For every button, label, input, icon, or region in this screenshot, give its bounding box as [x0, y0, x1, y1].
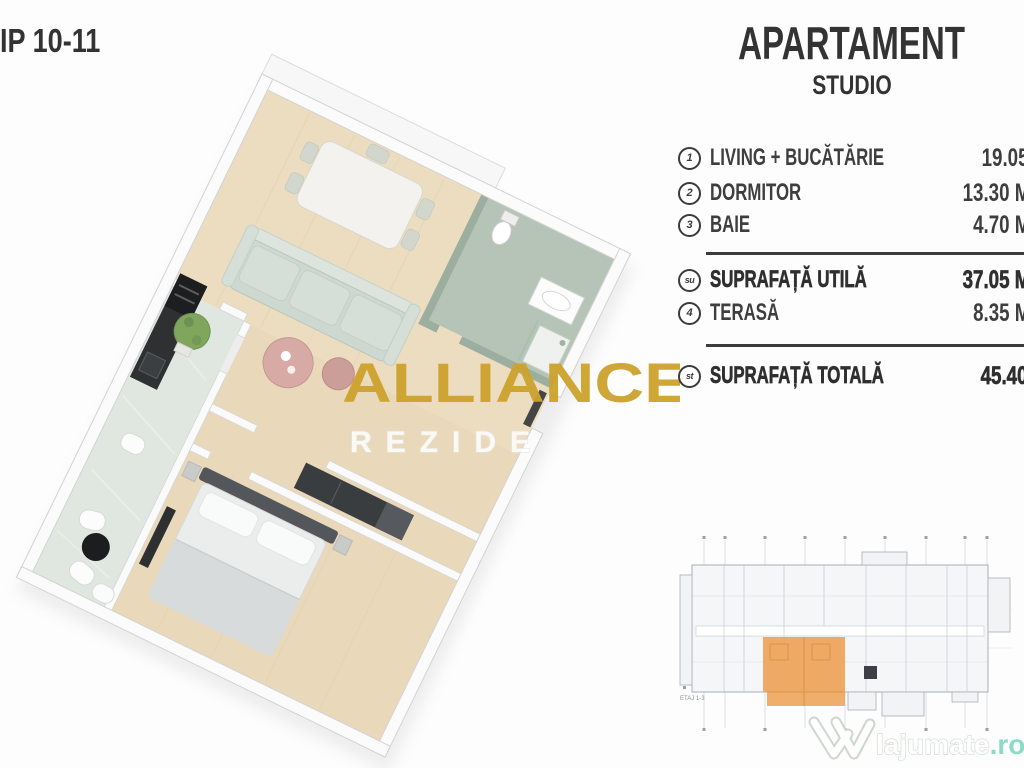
room-label: TERASĂ — [710, 299, 779, 327]
room-area: 4.70 M — [973, 211, 1024, 240]
su-badge: su — [678, 269, 701, 292]
summary-label: SUPRAFAȚĂ UTILĂ — [710, 266, 867, 294]
room-number-badge: 2 — [678, 182, 701, 205]
floor-label: ETAJ 1-3 — [680, 696, 705, 702]
floor-plan-3d-render: ALLIANCE REZIDE — [0, 40, 680, 768]
alliance-watermark-line1: ALLIANCE — [342, 351, 680, 414]
room-area: 13.30 M — [962, 179, 1024, 208]
room-number-badge: 3 — [678, 214, 701, 237]
room-area: 8.35 M — [973, 299, 1024, 328]
logo-text: lajumate.ro — [876, 729, 1024, 760]
panel-title: APARTAMENT STUDIO — [672, 20, 1024, 99]
total-row-suprafata-totala: st SUPRAFAȚĂ TOTALĂ 45.40 M — [678, 362, 1024, 390]
title-apartament: APARTAMENT — [739, 20, 966, 66]
room-row-living: 1 LIVING + BUCĂTĂRIE 19.05 M — [678, 144, 1024, 172]
alliance-watermark-line2: REZIDE — [350, 426, 544, 459]
alliance-watermark: ALLIANCE REZIDE — [342, 351, 680, 459]
heart-icon — [814, 722, 870, 754]
divider — [706, 344, 1024, 347]
room-number-badge: 1 — [678, 147, 701, 170]
total-label: SUPRAFAȚĂ TOTALĂ — [710, 362, 884, 390]
summary-area: 37.05 M — [962, 266, 1024, 295]
highlighted-units — [763, 637, 845, 706]
room-label: BAIE — [710, 211, 750, 239]
elevator-shaft — [864, 666, 877, 679]
room-number-badge: 4 — [678, 302, 701, 325]
room-area: 19.05 M — [981, 144, 1024, 173]
corridor — [696, 626, 984, 636]
divider — [706, 252, 1024, 255]
room-row-terasa: 4 TERASĂ 8.35 M — [678, 299, 1024, 327]
summary-row-suprafata-utila: su SUPRAFAȚĂ UTILĂ 37.05 M — [678, 266, 1024, 294]
room-row-baie: 3 BAIE 4.70 M — [678, 211, 1024, 239]
lajumate-logo: lajumate.ro — [800, 712, 1024, 768]
room-row-dormitor: 2 DORMITOR 13.30 M — [678, 179, 1024, 207]
st-badge: st — [678, 365, 701, 388]
room-label: DORMITOR — [710, 179, 801, 207]
title-studio: STUDIO — [812, 72, 892, 99]
room-label: LIVING + BUCĂTĂRIE — [710, 144, 884, 172]
apartment-listing-flyer: IP 10-11 — [0, 0, 1024, 768]
total-area: 45.40 M — [981, 362, 1024, 391]
